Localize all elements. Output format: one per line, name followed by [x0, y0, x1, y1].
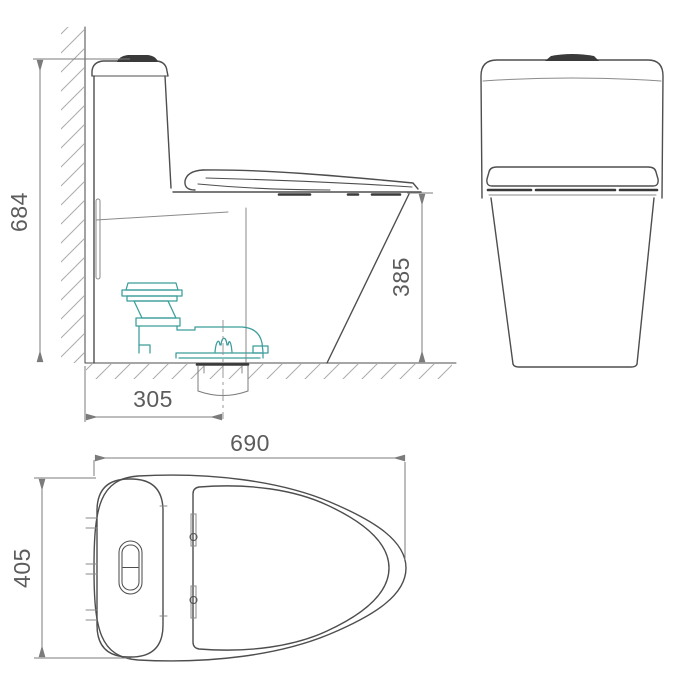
tank-front	[481, 60, 663, 198]
lid-top-profile	[203, 170, 418, 189]
outlet-elbow	[177, 327, 263, 352]
dimension-overall-width: 405	[9, 478, 131, 658]
dimension-label-bowl-height: 385	[388, 257, 414, 297]
dimension-label-overall-width: 405	[9, 548, 35, 588]
tank-lid-seam-front	[483, 78, 661, 81]
dimension-label-overall-length: 690	[230, 430, 270, 456]
valve-body-sides	[139, 326, 177, 353]
dimension-label-overall-height: 684	[6, 192, 32, 232]
outlet-base-plate	[176, 353, 263, 358]
drawing-canvas: 684 385 305	[0, 0, 700, 700]
side-view: 684 385 305	[6, 27, 456, 422]
dimension-overall-length: 690	[94, 430, 405, 560]
interior-shelf-line	[96, 212, 228, 220]
body-groove	[96, 199, 100, 279]
dimension-label-drain-offset: 305	[133, 386, 173, 412]
front-view	[481, 54, 663, 367]
valve-band	[127, 296, 177, 301]
seat-line	[198, 184, 330, 190]
seat-lid-band	[487, 167, 658, 186]
outer-outline	[94, 475, 406, 661]
flush-button-top	[119, 541, 142, 594]
pedestal-sides	[491, 198, 654, 364]
toilet-three-view-drawing: 684 385 305	[0, 0, 700, 700]
valve-neck	[134, 301, 176, 318]
tank-lid	[92, 61, 168, 76]
pedestal-bottom	[513, 364, 637, 367]
wall-hatching	[61, 27, 84, 363]
floor-hatching	[86, 364, 452, 379]
valve-collar	[136, 318, 180, 326]
seat-hinge-cap	[185, 170, 203, 190]
outlet-bracket	[253, 346, 268, 353]
top-view: 690 405	[9, 430, 406, 661]
valve-foot-left	[139, 345, 150, 353]
flapper-detail	[215, 338, 232, 352]
tank-side	[92, 55, 171, 363]
valve-flange	[122, 290, 182, 296]
dimension-bowl-height: 385	[388, 193, 433, 362]
flush-button-front	[545, 54, 599, 61]
tank-front-edge	[165, 76, 171, 188]
seat-and-lid-side	[173, 170, 421, 195]
seat-lid-outline	[193, 486, 389, 650]
valve-cap	[126, 283, 178, 290]
